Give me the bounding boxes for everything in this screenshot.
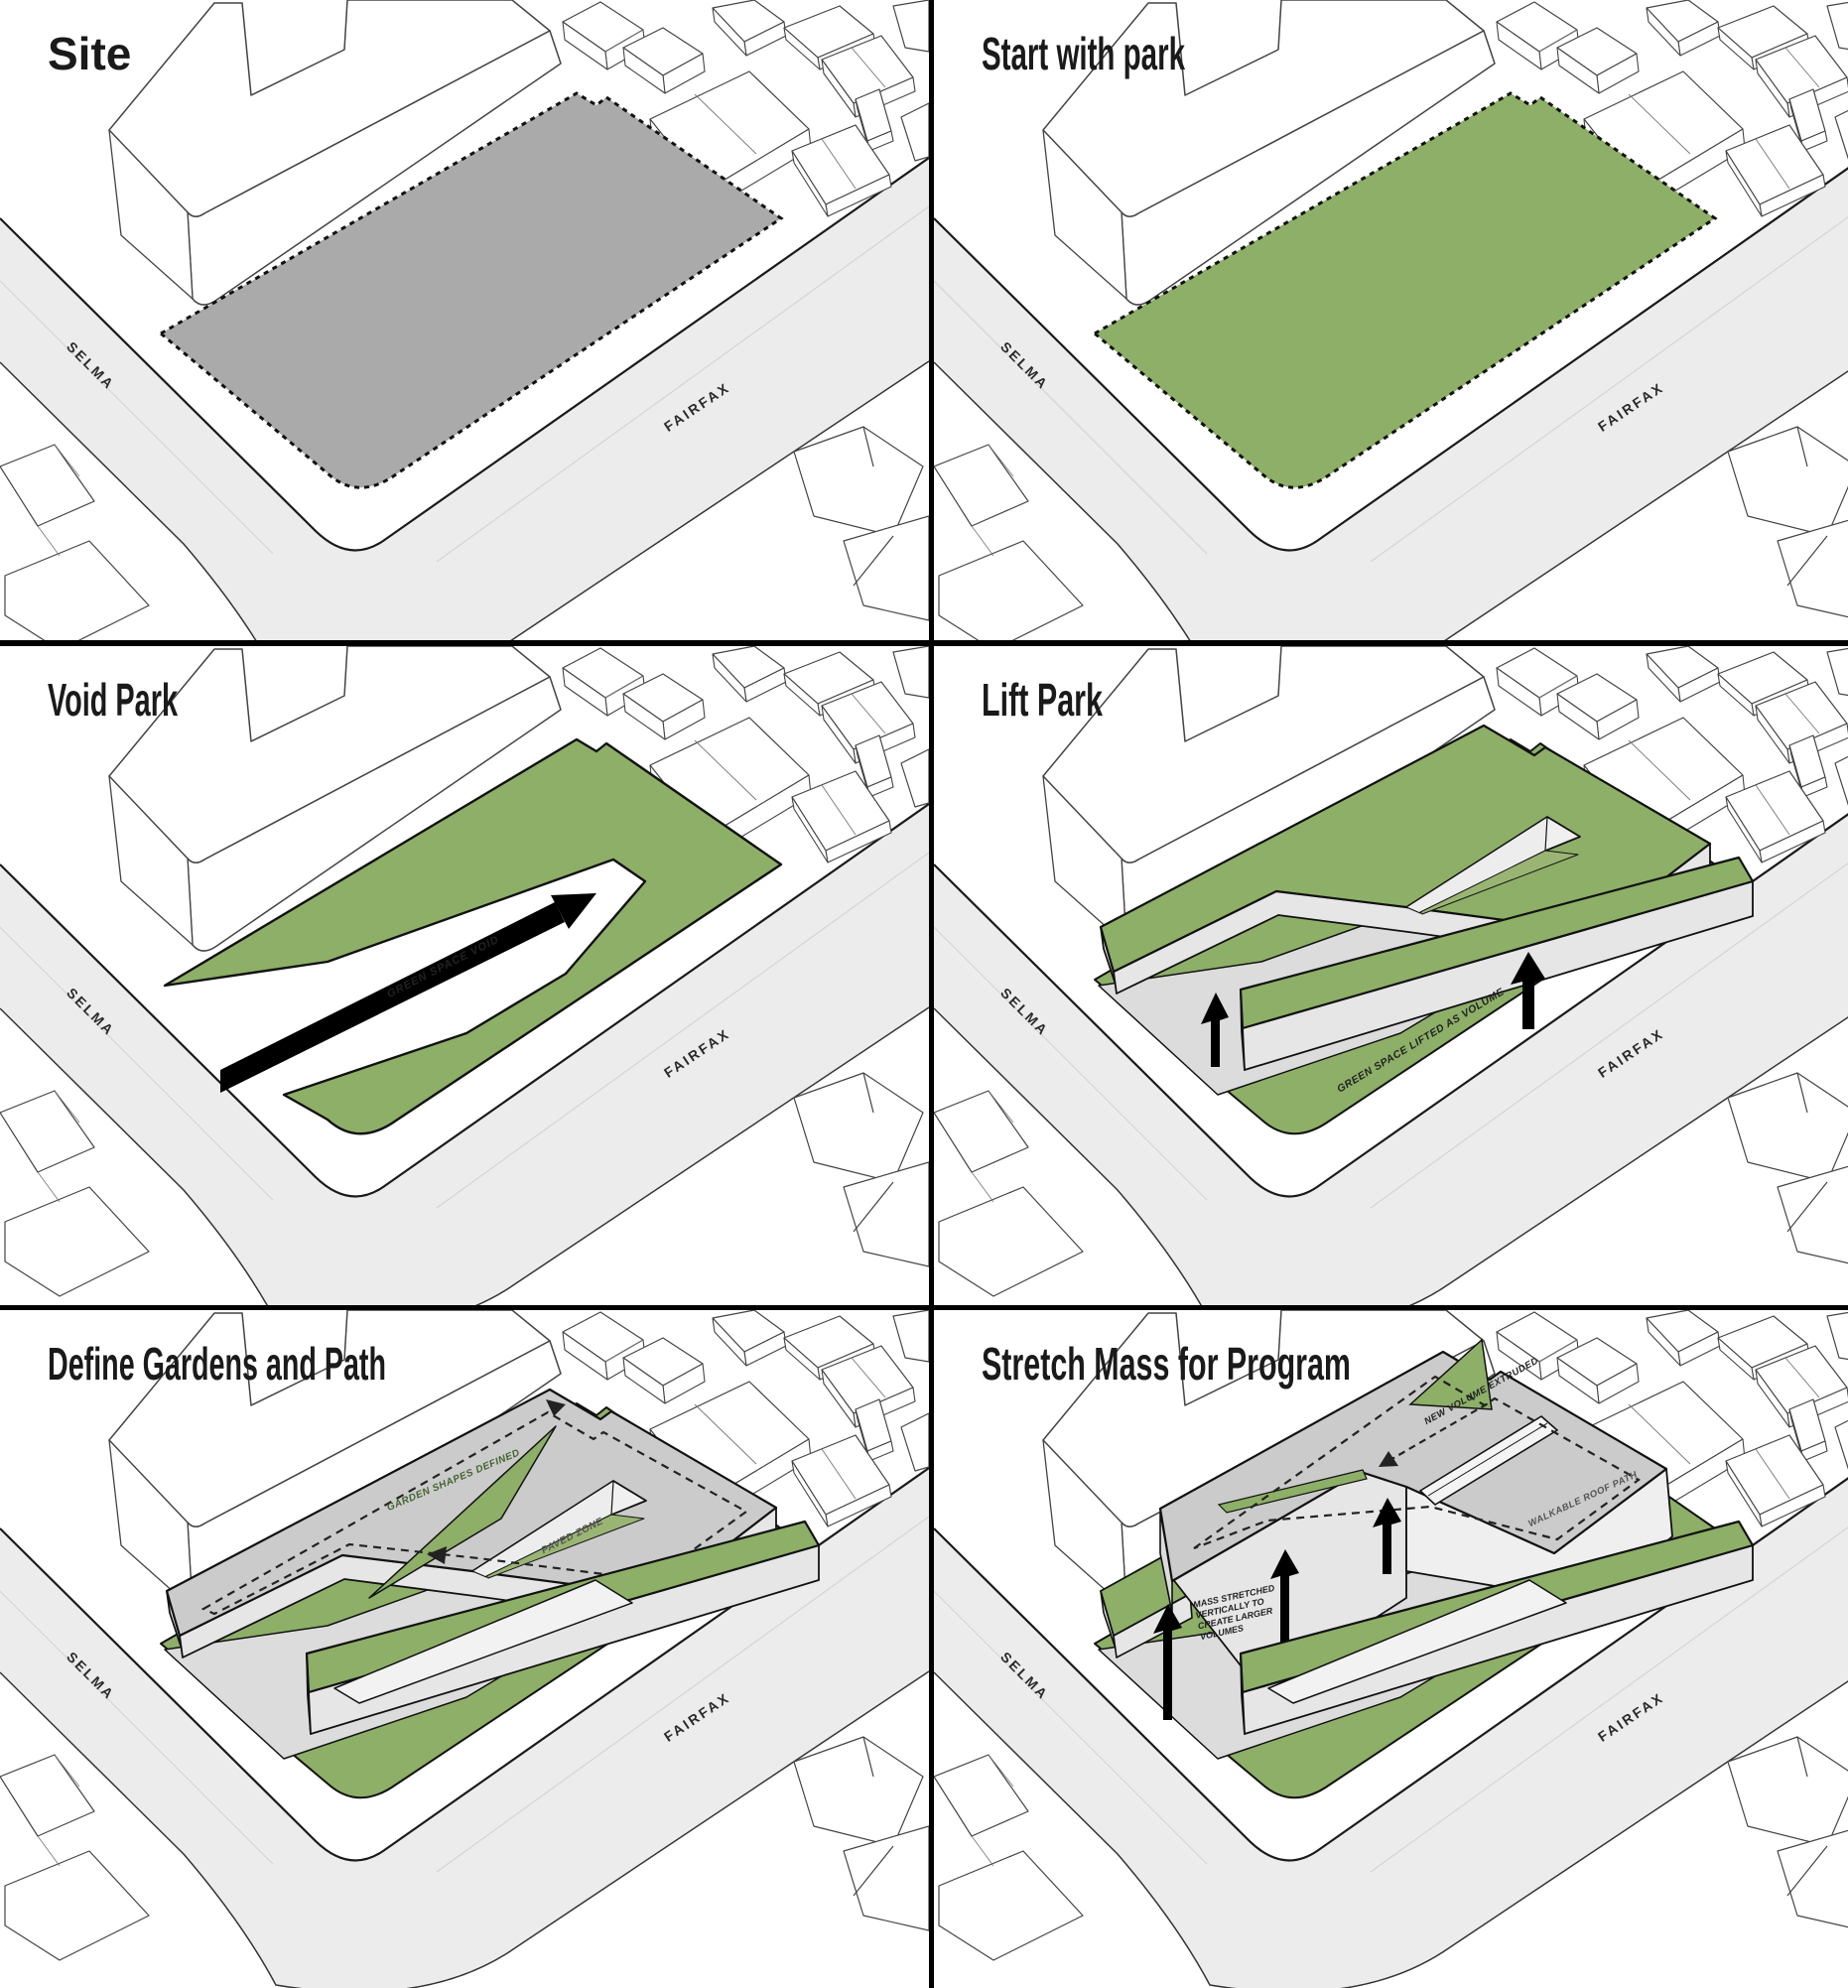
svg-text:Site: Site bbox=[48, 28, 131, 79]
svg-text:Void Park: Void Park bbox=[48, 674, 178, 726]
svg-text:GREEN SPACE VOID: GREEN SPACE VOID bbox=[385, 934, 501, 1001]
svg-text:Lift Park: Lift Park bbox=[982, 674, 1103, 726]
svg-text:Stretch Mass for Program: Stretch Mass for Program bbox=[982, 1338, 1351, 1390]
svg-text:Start with park: Start with park bbox=[982, 28, 1185, 79]
svg-text:Define Gardens and Path: Define Gardens and Path bbox=[48, 1338, 386, 1390]
